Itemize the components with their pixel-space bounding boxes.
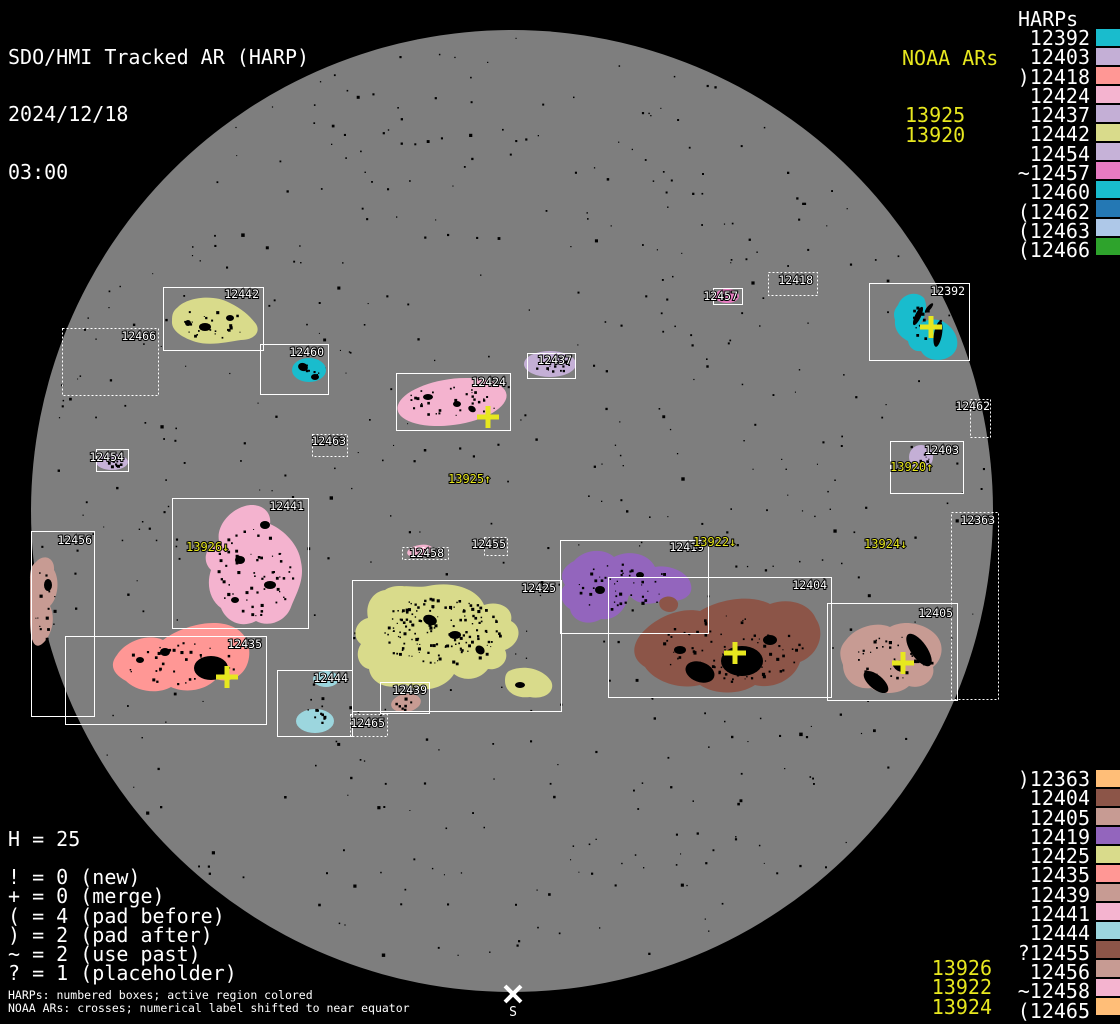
harp-box-label-12425: 12425 [521, 581, 556, 595]
harp-legend-label: (12466 [1018, 241, 1090, 260]
harp-color-swatch [1096, 808, 1120, 825]
harp-box-label-12454: 12454 [89, 450, 124, 464]
harp-color-swatch [1096, 86, 1120, 103]
harp-color-swatch [1096, 29, 1120, 46]
harp-color-swatch [1096, 200, 1120, 217]
harp-color-swatch [1096, 884, 1120, 901]
harp-color-swatch [1096, 162, 1120, 179]
noaa-ars-top-items: 1392513920 [902, 106, 998, 145]
harp-color-swatch [1096, 219, 1120, 236]
footnotes: HARPs: numbered boxes; active region col… [8, 989, 410, 1014]
noaa-ar-number: 13924 [932, 998, 992, 1017]
harp-box-label-12437: 12437 [537, 353, 572, 367]
time-label: 03:00 [8, 163, 309, 182]
noaa-ar-number: 13920 [902, 126, 998, 145]
noaa-disk-label: 13924↓ [864, 537, 907, 551]
harp-legend-label: (12465 [1018, 1002, 1090, 1021]
harp-box-label-12404: 12404 [792, 578, 827, 592]
harp-box-label-12460: 12460 [289, 345, 324, 359]
flag-legend-line: ? = 1 (placeholder) [8, 964, 237, 983]
footnote-line: HARPs: numbered boxes; active region col… [8, 989, 410, 1002]
harp-box-label-12455: 12455 [471, 537, 506, 551]
harp-map-canvas: 1244212466124601242412437124631245412457… [0, 0, 1120, 1024]
harp-color-swatch [1096, 124, 1120, 141]
noaa-disk-label: 13920↑ [890, 460, 933, 474]
harps-top-swatch-column [1096, 29, 1120, 257]
harp-color-swatch [1096, 979, 1120, 996]
active-region-12460 [292, 358, 326, 382]
harp-color-swatch [1096, 941, 1120, 958]
harp-color-swatch [1096, 998, 1120, 1015]
harp-color-swatch [1096, 67, 1120, 84]
harp-box-label-12458: 12458 [409, 546, 444, 560]
harp-box-label-12441: 12441 [269, 499, 304, 513]
harp-color-swatch [1096, 105, 1120, 122]
harp-color-swatch [1096, 903, 1120, 920]
harp-box-label-12424: 12424 [471, 375, 506, 389]
noaa-ars-top-legend: NOAA ARs 1392513920 [902, 10, 998, 184]
harp-box-label-12465: 12465 [350, 716, 385, 730]
harp-color-swatch [1096, 846, 1120, 863]
harps-bottom-list: )123631240412405124191242512435124391244… [1018, 770, 1090, 1021]
harp-box-label-12462: 12462 [955, 399, 990, 413]
harp-box-label-12435: 12435 [227, 637, 262, 651]
harp-color-swatch [1096, 181, 1120, 198]
harp-color-swatch [1096, 143, 1120, 160]
flag-legend: ! = 0 (new)+ = 0 (merge)( = 4 (pad befor… [8, 868, 237, 984]
south-pole-label: S [509, 1005, 517, 1020]
harp-color-swatch [1096, 789, 1120, 806]
harp-color-swatch [1096, 770, 1120, 787]
harp-box-label-12439: 12439 [392, 683, 427, 697]
harp-count-label: H = 25 [8, 830, 80, 849]
noaa-ars-bottom-items: 139261392213924 [932, 959, 992, 1017]
harp-box-label-12418: 12418 [778, 273, 813, 287]
noaa-disk-label: 13922↓ [693, 535, 736, 549]
harps-top-list: 1239212403)1241812424124371244212454~124… [1018, 29, 1090, 261]
harp-box-label-12363: 12363 [960, 513, 995, 527]
noaa-ars-title: NOAA ARs [902, 49, 998, 68]
harp-box-label-12463: 12463 [311, 434, 346, 448]
harp-box-label-12466: 12466 [121, 329, 156, 343]
footnote-line: NOAA ARs: crosses; numerical label shift… [8, 1002, 410, 1015]
harp-box-label-12405: 12405 [918, 606, 953, 620]
harp-box-label-12456: 12456 [57, 533, 92, 547]
app-title: SDO/HMI Tracked AR (HARP) [8, 48, 309, 67]
harp-box-label-12442: 12442 [224, 287, 259, 301]
harp-box-label-12457: 12457 [703, 289, 738, 303]
harp-box-label-12392: 12392 [930, 284, 965, 298]
harps-bottom-swatch-column [1096, 770, 1120, 1017]
harp-color-swatch [1096, 865, 1120, 882]
harp-color-swatch [1096, 827, 1120, 844]
harp-box-label-12403: 12403 [924, 443, 959, 457]
noaa-disk-label: 13925↑ [448, 472, 491, 486]
harp-color-swatch [1096, 922, 1120, 939]
title-block: SDO/HMI Tracked AR (HARP) 2024/12/18 03:… [8, 9, 309, 221]
harp-color-swatch [1096, 960, 1120, 977]
noaa-disk-label: 13926↓ [186, 540, 229, 554]
harp-color-swatch [1096, 48, 1120, 65]
date-label: 2024/12/18 [8, 105, 309, 124]
harp-color-swatch [1096, 238, 1120, 255]
harp-box-label-12444: 12444 [313, 671, 348, 685]
